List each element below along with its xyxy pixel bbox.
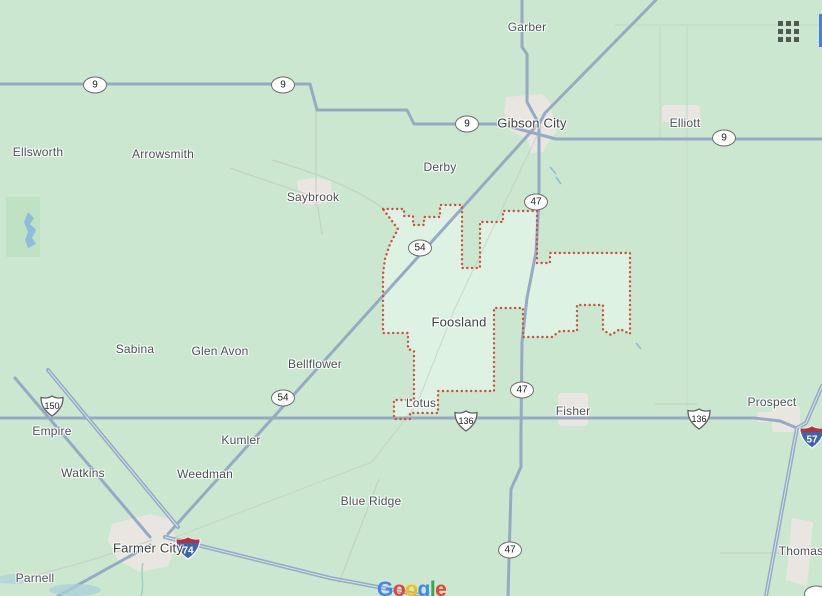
route-shield-us-150: 150	[39, 395, 65, 418]
place-label-kumler[interactable]: Kumler	[221, 433, 260, 447]
place-label-foosland[interactable]: Foosland	[431, 315, 486, 330]
shield-ellipse: 47	[498, 542, 522, 559]
place-label-elliott[interactable]: Elliott	[670, 116, 701, 130]
svg-text:136: 136	[458, 416, 473, 426]
route-shield-state-9: 9	[455, 116, 479, 133]
place-label-watkins[interactable]: Watkins	[61, 466, 105, 480]
route-shield-state-47: 47	[524, 194, 548, 211]
svg-text:57: 57	[806, 435, 818, 446]
svg-text:136: 136	[691, 414, 706, 424]
google-logo-letter: G	[377, 577, 393, 596]
place-label-fisher[interactable]: Fisher	[556, 404, 591, 418]
route-shield-state-54: 54	[408, 240, 432, 257]
map-canvas[interactable]: 999947474754541501361367457 GarberGibson…	[0, 0, 822, 596]
place-label-sabina[interactable]: Sabina	[116, 342, 155, 356]
route-shield-state-partial	[804, 586, 822, 596]
route-shield-us-136: 136	[686, 408, 712, 431]
route-shield-state-47: 47	[510, 382, 534, 399]
foosland-region-fill[interactable]	[383, 205, 630, 419]
shield-ellipse: 9	[271, 77, 295, 94]
road-northeast-diagonal	[539, 0, 656, 124]
place-label-saybrook[interactable]: Saybrook	[287, 190, 339, 204]
shield-ellipse: 47	[524, 194, 548, 211]
place-label-glen-avon[interactable]: Glen Avon	[192, 344, 249, 358]
place-label-blue-ridge[interactable]: Blue Ridge	[341, 494, 402, 508]
place-label-empire[interactable]: Empire	[32, 424, 71, 438]
google-logo-letter: o	[405, 577, 417, 596]
route-shield-state-54: 54	[271, 390, 295, 407]
place-label-ellsworth[interactable]: Ellsworth	[13, 145, 63, 159]
place-label-bellflower[interactable]: Bellflower	[288, 357, 342, 371]
route-shield-state-9: 9	[271, 77, 295, 94]
shield-ellipse: 9	[712, 130, 736, 147]
google-logo-letter: o	[393, 577, 405, 596]
place-label-lotus[interactable]: Lotus	[406, 396, 436, 410]
google-logo-letter: e	[435, 577, 446, 596]
route-shield-state-47: 47	[498, 542, 522, 559]
place-label-arrowsmith[interactable]: Arrowsmith	[132, 147, 194, 161]
route-shield-us-136: 136	[453, 410, 479, 433]
place-label-gibson-city[interactable]: Gibson City	[497, 116, 566, 131]
place-label-derby[interactable]: Derby	[423, 160, 456, 174]
svg-text:74: 74	[182, 546, 194, 557]
route-shield-state-9: 9	[83, 77, 107, 94]
google-logo[interactable]: Google	[377, 577, 446, 596]
map-art	[0, 0, 822, 596]
route-shield-interstate-57: 57	[798, 425, 822, 450]
water-features	[0, 167, 641, 596]
svg-text:150: 150	[44, 401, 59, 411]
shield-ellipse: 54	[271, 390, 295, 407]
park-patch	[6, 197, 40, 257]
shield-ellipse: 54	[408, 240, 432, 257]
place-label-parnell[interactable]: Parnell	[16, 571, 55, 585]
place-label-garber[interactable]: Garber	[508, 20, 547, 34]
shield-ellipse: 9	[455, 116, 479, 133]
shield-ellipse: 9	[83, 77, 107, 94]
shield-ellipse	[804, 586, 822, 596]
road-us136	[0, 418, 797, 428]
road-us150	[15, 378, 150, 537]
google-logo-letter: g	[418, 577, 430, 596]
route-shield-state-9: 9	[712, 130, 736, 147]
place-label-farmer-city[interactable]: Farmer City	[113, 541, 183, 556]
place-label-thomas[interactable]: Thomas	[779, 544, 822, 558]
apps-grid-icon[interactable]	[778, 21, 800, 43]
place-label-weedman[interactable]: Weedman	[177, 467, 233, 481]
shield-ellipse: 47	[510, 382, 534, 399]
place-label-prospect[interactable]: Prospect	[748, 395, 797, 409]
